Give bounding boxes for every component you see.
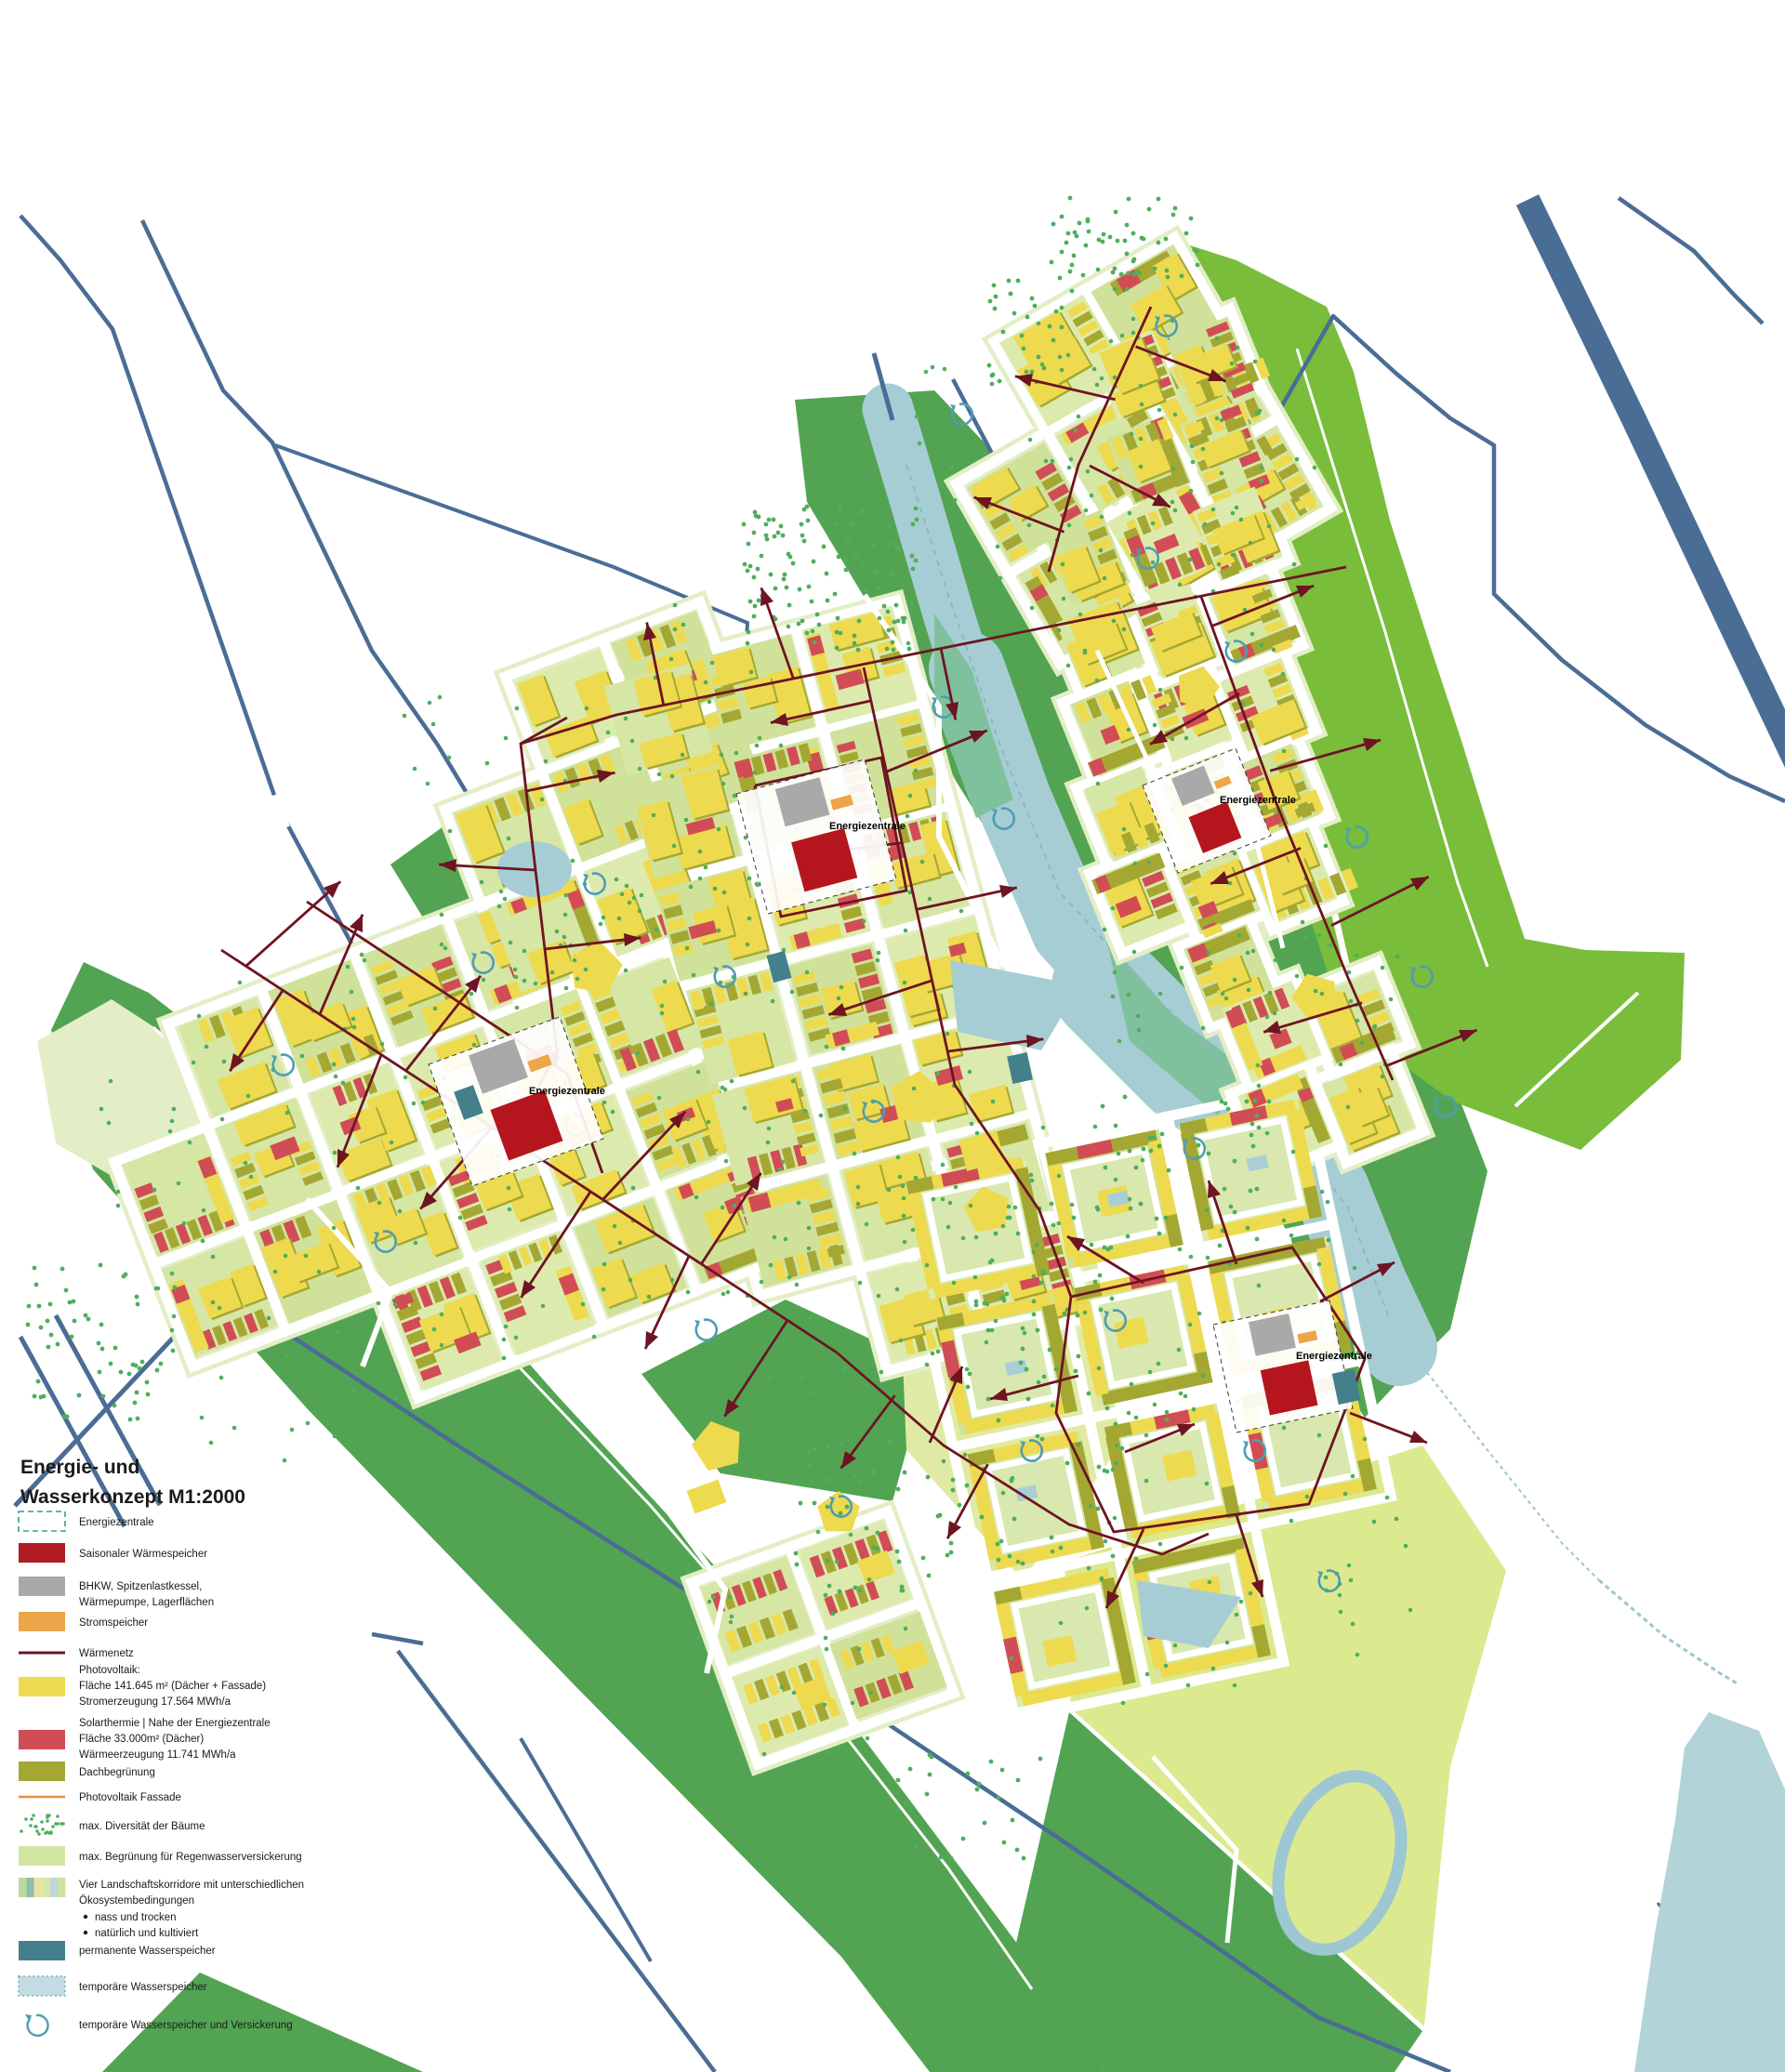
- svg-text:Solarthermie | Nahe der Energi: Solarthermie | Nahe der Energiezentrale: [79, 1718, 271, 1729]
- svg-text:Energiezentrale: Energiezentrale: [79, 1517, 154, 1528]
- svg-text:permanente Wasserspeicher: permanente Wasserspeicher: [79, 1946, 216, 1957]
- svg-text:Stromspeicher: Stromspeicher: [79, 1617, 148, 1629]
- svg-text:Saisonaler Wärmespeicher: Saisonaler Wärmespeicher: [79, 1549, 207, 1560]
- svg-text:Fläche 141.645 m² (Dächer + Fa: Fläche 141.645 m² (Dächer + Fassade): [79, 1681, 266, 1692]
- svg-text:BHKW, Spitzenlastkessel,: BHKW, Spitzenlastkessel,: [79, 1581, 202, 1592]
- svg-text:Wärmeerzeugung 11.741 MWh/a: Wärmeerzeugung 11.741 MWh/a: [79, 1749, 236, 1761]
- svg-text:Energiezentrale: Energiezentrale: [1220, 795, 1296, 806]
- svg-text:Wasserkonzept M1:2000: Wasserkonzept M1:2000: [20, 1486, 245, 1508]
- svg-text:natürlich und kultiviert: natürlich und kultiviert: [95, 1928, 199, 1939]
- svg-text:max. Diversität der Bäume: max. Diversität der Bäume: [79, 1821, 205, 1832]
- svg-text:Energiezentrale: Energiezentrale: [829, 821, 906, 832]
- svg-text:max. Begrünung für Regenwasser: max. Begrünung für Regenwasserversickeru…: [79, 1852, 302, 1863]
- svg-text:nass und trocken: nass und trocken: [95, 1912, 177, 1923]
- svg-text:Ökosystembedingungen: Ökosystembedingungen: [79, 1895, 194, 1907]
- svg-text:temporäre Wasserspeicher und V: temporäre Wasserspeicher und Versickerun…: [79, 2020, 293, 2031]
- svg-text:Energiezentrale: Energiezentrale: [529, 1086, 605, 1097]
- svg-text:Stromerzeugung 17.564 MWh/a: Stromerzeugung 17.564 MWh/a: [79, 1696, 231, 1708]
- svg-text:Photovoltaik Fassade: Photovoltaik Fassade: [79, 1792, 181, 1803]
- svg-text:Energie- und: Energie- und: [20, 1457, 139, 1478]
- svg-text:Fläche 33.000m² (Dächer): Fläche 33.000m² (Dächer): [79, 1734, 204, 1745]
- svg-text:Wärmepumpe, Lagerflächen: Wärmepumpe, Lagerflächen: [79, 1597, 214, 1608]
- svg-text:Photovoltaik:: Photovoltaik:: [79, 1665, 140, 1676]
- svg-text:Energiezentrale: Energiezentrale: [1296, 1351, 1372, 1362]
- svg-text:temporäre Wasserspeicher: temporäre Wasserspeicher: [79, 1982, 207, 1993]
- svg-text:Wärmenetz: Wärmenetz: [79, 1648, 134, 1659]
- svg-text:Dachbegrünung: Dachbegrünung: [79, 1767, 155, 1778]
- svg-text:Vier Landschaftskorridore mit: Vier Landschaftskorridore mit unterschie…: [79, 1880, 304, 1891]
